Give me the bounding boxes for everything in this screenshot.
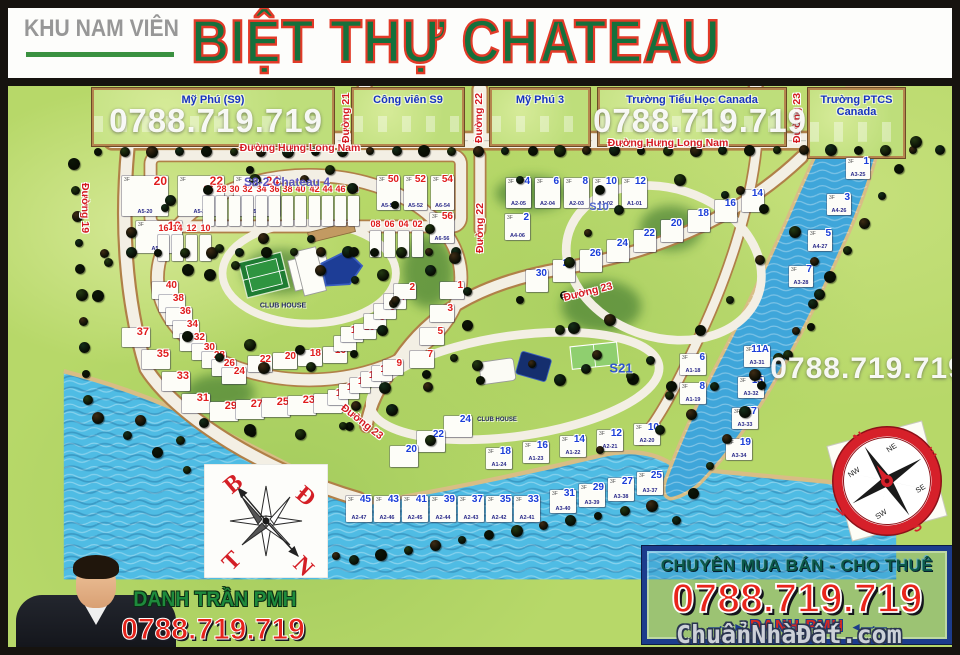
tree-icon (425, 248, 433, 256)
tree-icon (154, 249, 162, 257)
lot-block: 13FA3-25 (846, 158, 870, 179)
agent-hair (73, 555, 119, 579)
lot-block: 183FA1-24 (486, 448, 512, 469)
lot-block: 1 (440, 282, 464, 299)
tree-icon (792, 327, 800, 335)
lot-floor-label: 3F (124, 177, 130, 183)
tree-icon (473, 146, 484, 157)
lot-block: 83FA2-03 (564, 178, 589, 208)
tree-icon (83, 395, 93, 405)
tree-icon (554, 374, 566, 386)
tree-icon (463, 287, 472, 296)
lot-floor-label: 3F (406, 177, 412, 183)
agent-head (76, 560, 116, 608)
lot-block: 63FA2-04 (535, 178, 560, 208)
lot-floor-label: 3F (138, 222, 144, 228)
lot-block: 30 (526, 270, 548, 292)
lot-block: 143FA1-22 (560, 436, 586, 457)
lot-number: 19 (740, 438, 751, 448)
lot-number: 20 (671, 219, 682, 229)
lot-number: 35 (500, 495, 511, 505)
phone-overlay: 0788.719.719 (593, 102, 807, 140)
lot-floor-label: 3F (180, 177, 186, 183)
tree-icon (646, 500, 658, 512)
lot-number: 24 (460, 415, 471, 425)
lot-code: A6-54 (431, 203, 454, 209)
district-block: Công viên S9 (352, 88, 464, 146)
lot-block: 413FA2-45 (402, 496, 428, 522)
lot-code: A3-34 (726, 453, 752, 459)
lot-floor-label: 3F (348, 497, 354, 503)
tree-icon (810, 257, 819, 266)
tree-icon (246, 166, 254, 174)
lot-number: 2 (523, 213, 529, 223)
lot-floor-label: 3F (516, 497, 522, 503)
lot-block: 123FA1-01 (622, 178, 647, 208)
lot-floor-label: 3F (636, 425, 642, 431)
lot-number: 20 (285, 352, 296, 362)
lot-number: 50 (388, 175, 399, 185)
lot-block: 433FA2-46 (374, 496, 400, 522)
tree-icon (261, 247, 272, 258)
lot-block: 373FA2-43 (458, 496, 484, 522)
area-underline (26, 52, 174, 57)
lot-code: A1-24 (486, 462, 512, 468)
tree-icon (655, 425, 665, 435)
lot-code: A6-56 (430, 236, 454, 242)
lot-block: 36 (269, 196, 280, 226)
tree-icon (315, 265, 326, 276)
lot-code: A3-37 (637, 488, 663, 494)
lot-block: 29 (210, 402, 238, 421)
lot-number: 30 (536, 269, 547, 279)
tree-icon (152, 447, 163, 458)
lot-code: A2-41 (514, 515, 540, 521)
tree-icon (462, 320, 473, 331)
lot-block: 23 (288, 396, 316, 415)
lot-floor-label: 3F (404, 497, 410, 503)
lot-block: 3 (430, 305, 454, 322)
tree-icon (516, 176, 524, 184)
lot-number: 18 (310, 349, 321, 359)
tree-icon (430, 540, 441, 551)
lot-floor-label: 3F (433, 177, 439, 183)
tree-icon (807, 323, 815, 331)
lot-number: 16 (158, 224, 168, 233)
tree-icon (244, 424, 256, 436)
district-label: Trường PTCS Canada (810, 94, 903, 118)
lot-number: 02 (412, 220, 422, 229)
lot-number: 8 (582, 177, 588, 187)
lot-code: A3-40 (550, 506, 576, 512)
lot-number: 31 (564, 489, 575, 499)
lot-block: 46 (335, 196, 346, 226)
lot-number: 22 (644, 229, 655, 239)
lot-number: 4 (524, 177, 530, 187)
agent-phone: 0788.719.719 (121, 613, 305, 647)
tree-icon (935, 145, 945, 155)
tree-icon (68, 158, 80, 170)
lot-code: A1-22 (560, 450, 586, 456)
lot-floor-label: 3F (507, 215, 513, 221)
promo-phone: 0788.719.719 (647, 577, 947, 620)
lot-number: 24 (234, 367, 245, 377)
lot-number: 18 (698, 209, 709, 219)
tree-icon (843, 246, 852, 255)
tree-icon (516, 296, 524, 304)
tree-icon (584, 229, 592, 237)
tree-icon (92, 412, 104, 424)
lot-block: 11A3FA3-31 (744, 346, 770, 367)
tree-icon (94, 148, 102, 156)
lot-code: A2-42 (486, 515, 512, 521)
watermark: ChuẩnNhàĐất.com (676, 620, 902, 647)
lot-code: A4-26 (827, 208, 851, 214)
tree-icon (76, 289, 88, 301)
lot-code: A1-19 (680, 397, 706, 403)
lot-floor-label: 3F (376, 497, 382, 503)
lot-code: A2-44 (430, 515, 456, 521)
lot-code: A3-32 (738, 391, 764, 397)
tree-icon (555, 325, 565, 335)
lot-block: 33 (162, 372, 190, 391)
lot-block: 33FA4-26 (827, 194, 851, 215)
lot-code: A3-33 (732, 422, 758, 428)
tree-icon (695, 325, 706, 336)
lot-number: 16 (537, 441, 548, 451)
lot-number: 7 (427, 350, 433, 360)
section-label: S8-2 Chateau 4 (244, 175, 330, 189)
agent-name: DANH TRẦN PMH (133, 588, 296, 612)
lot-number: 8 (699, 382, 705, 392)
lot-number: 38 (173, 294, 184, 304)
lot-floor-label: 3F (508, 179, 514, 185)
lot-block: 02 (412, 231, 423, 257)
lot-code: A2-05 (506, 201, 531, 207)
section-label: CLUB HOUSE (260, 303, 306, 310)
lot-number: 30 (229, 185, 239, 194)
lot-number: 25 (651, 471, 662, 481)
tree-icon (325, 165, 335, 175)
tree-icon (425, 265, 436, 276)
street-label: Đường 21 (340, 93, 352, 143)
lot-block: 34 (256, 196, 267, 226)
lot-block: 31 (182, 394, 210, 413)
lot-floor-label: 3F (488, 449, 494, 455)
tree-icon (370, 248, 379, 257)
header: KHU NAM VIÊN BIỆT THỰ CHATEAU (8, 8, 952, 86)
street-label: Đường 19 (79, 183, 91, 233)
lot-code: A3-31 (744, 360, 770, 366)
lot-number: 35 (157, 349, 169, 360)
tree-icon (450, 354, 458, 362)
lot-floor-label: 3F (810, 231, 816, 237)
lot-number: 33 (528, 495, 539, 505)
tree-icon (854, 146, 863, 155)
poster-title: BIỆT THỰ CHATEAU (191, 7, 720, 76)
tree-icon (646, 356, 655, 365)
site-map: Mỹ Phú (S9)Công viên S9Mỹ Phú 3Trường Ti… (0, 86, 960, 647)
lot-block: 35 (142, 350, 170, 369)
tree-icon (568, 322, 580, 334)
lot-code: A4-27 (808, 244, 832, 250)
street-label: Đường 22 (474, 203, 486, 253)
lot-number: 14 (574, 435, 585, 445)
lot-number: 14 (172, 224, 182, 233)
tree-icon (203, 185, 213, 195)
tree-icon (350, 350, 358, 358)
section-label: S21 (609, 361, 632, 376)
tree-icon (349, 555, 359, 565)
lot-number: 41 (416, 495, 427, 505)
lot-block: 48 (348, 196, 359, 226)
tree-icon (726, 296, 734, 304)
tree-icon (347, 183, 358, 194)
tree-icon (425, 435, 436, 446)
tree-icon (75, 239, 83, 247)
lot-number: 54 (442, 175, 453, 185)
lot-floor-label: 3F (624, 179, 630, 185)
lot-block: 163FA1-23 (523, 442, 549, 463)
tree-icon (736, 186, 745, 195)
lot-number: 3 (447, 304, 453, 314)
lot-floor-label: 3F (566, 179, 572, 185)
tree-icon (594, 512, 602, 520)
lot-floor-label: 3F (740, 378, 746, 384)
tree-icon (258, 233, 269, 244)
tree-icon (564, 257, 575, 268)
lot-block: 16 (158, 235, 169, 261)
lot-number: 10 (200, 224, 210, 233)
lot-block: 293FA3-39 (579, 484, 605, 507)
lot-number: 45 (360, 495, 371, 505)
tree-icon (755, 255, 765, 265)
lot-block: 26 (580, 250, 602, 272)
district-label: Công viên S9 (373, 94, 443, 106)
lot-block: 20 (390, 446, 418, 467)
lot-number: 20 (154, 175, 167, 187)
lot-floor-label: 3F (236, 177, 242, 183)
lot-number: 10 (606, 177, 617, 187)
tree-icon (511, 525, 523, 537)
tree-icon (620, 506, 630, 516)
lot-floor-label: 3F (599, 431, 605, 437)
lot-code: A1-01 (622, 201, 647, 207)
lot-floor-label: 3F (639, 473, 645, 479)
lot-block: 333FA2-41 (514, 496, 540, 522)
tree-icon (258, 362, 270, 374)
lot-block: 9 (383, 360, 403, 375)
tree-icon (404, 546, 413, 555)
tree-icon (757, 381, 766, 390)
section-label: S10 (589, 201, 609, 213)
tree-icon (391, 296, 400, 305)
lot-block: 23FA4-06 (505, 214, 530, 240)
tree-icon (688, 488, 699, 499)
phone-overlay: 0788.719.719 (109, 102, 323, 140)
lot-block: 40 (295, 196, 306, 226)
lot-code: A4-06 (505, 233, 530, 239)
tree-icon (231, 261, 240, 270)
lot-number: 40 (166, 281, 177, 291)
lot-block: 273FA3-38 (608, 478, 634, 501)
tree-icon (126, 247, 137, 258)
section-label: CLUB HOUSE (477, 417, 517, 423)
district-block: Mỹ Phú 3 (490, 88, 590, 146)
tree-icon (230, 148, 238, 156)
lot-block: 353FA2-42 (486, 496, 512, 522)
tree-icon (614, 205, 624, 215)
lot-floor-label: 3F (682, 355, 688, 361)
project-area-label: KHU NAM VIÊN (24, 15, 179, 43)
lot-block: 63FA1-18 (680, 354, 706, 375)
tree-icon (244, 339, 256, 351)
lot-code: A2-43 (458, 515, 484, 521)
lot-code: A2-03 (564, 201, 589, 207)
tree-icon (665, 391, 674, 400)
tree-icon (92, 290, 104, 302)
tree-icon (183, 466, 191, 474)
lot-number: 56 (442, 212, 453, 222)
tree-icon (447, 147, 456, 156)
lot-floor-label: 3F (488, 497, 494, 503)
lot-number: 18 (500, 447, 511, 457)
lot-floor-label: 3F (829, 195, 835, 201)
lot-number: 16 (725, 199, 736, 209)
tree-icon (859, 218, 870, 229)
lot-number: 31 (197, 393, 209, 404)
lot-number: 08 (370, 220, 380, 229)
tree-icon (596, 446, 604, 454)
lot-number: 37 (472, 495, 483, 505)
tree-icon (316, 247, 326, 257)
tree-icon (100, 249, 109, 258)
lot-number: 1 (863, 157, 869, 167)
lot-block: 44 (322, 196, 333, 226)
lot-code: A2-20 (634, 438, 660, 444)
tree-icon (182, 264, 194, 276)
lot-number: 34 (187, 320, 198, 330)
lot-block: 16 (715, 200, 737, 222)
tree-icon (672, 516, 681, 525)
lot-number: 12 (611, 429, 622, 439)
street-label: Đường Hưng Long Nam (240, 142, 361, 154)
lot-number: 04 (398, 220, 408, 229)
tree-icon (182, 331, 193, 342)
lot-code: A2-45 (402, 515, 428, 521)
lot-number: 06 (384, 220, 394, 229)
tree-icon (123, 431, 132, 440)
lot-block: 313FA3-40 (550, 490, 576, 513)
tree-icon (215, 353, 224, 362)
tree-icon (476, 376, 485, 385)
lot-floor-label: 3F (581, 485, 587, 491)
lot-block: 18 (688, 210, 710, 232)
lot-code: A3-25 (846, 172, 870, 178)
tree-icon (422, 370, 431, 379)
street-label: Đường 22 (473, 93, 485, 143)
lot-number: 5 (437, 327, 443, 337)
compass-rose: N S E W NE SE SW NW (822, 416, 952, 551)
lot-number: 52 (415, 175, 426, 185)
tree-icon (878, 192, 886, 200)
lot-number: 26 (590, 249, 601, 259)
lot-floor-label: 3F (562, 437, 568, 443)
lot-code: A2-04 (535, 201, 560, 207)
lot-number: 28 (216, 185, 226, 194)
lot-block: 22 (634, 230, 656, 252)
lot-number: 46 (335, 185, 345, 194)
lot-block: 28 (216, 196, 227, 226)
lot-block: 83FA1-19 (680, 383, 706, 404)
lot-floor-label: 3F (525, 443, 531, 449)
lot-block: 253FA3-37 (637, 472, 663, 495)
lot-block: 24 (222, 368, 246, 384)
lot-block: 24 (444, 416, 472, 437)
lot-number: 14 (752, 189, 763, 199)
district-label: Mỹ Phú 3 (516, 94, 564, 106)
lot-block: 26 (203, 196, 214, 226)
tree-icon (666, 381, 677, 392)
lot-code: A1-23 (523, 456, 549, 462)
lot-block: 453FA2-47 (346, 496, 372, 522)
lot-number: 33 (177, 371, 189, 382)
tree-icon (674, 174, 686, 186)
lot-block: 06 (384, 231, 395, 257)
compass-sketch: B Đ T N (204, 464, 328, 583)
phone-overlay: 0788.719.719 (770, 352, 960, 386)
lot-code: A2-47 (346, 515, 372, 521)
tree-icon (710, 382, 719, 391)
tree-icon (377, 269, 389, 281)
lot-number: 20 (406, 445, 417, 455)
tree-icon (332, 552, 340, 560)
lot-block: 25 (262, 398, 290, 417)
lot-number: 7 (806, 265, 812, 275)
lot-block: 7 (410, 351, 434, 368)
tree-icon (910, 136, 922, 148)
tree-icon (235, 248, 244, 257)
lot-floor-label: 3F (552, 491, 558, 497)
lot-floor-label: 3F (848, 159, 854, 165)
lot-floor-label: 3F (537, 179, 543, 185)
lot-floor-label: 3F (432, 214, 438, 220)
tree-icon (880, 145, 891, 156)
tree-icon (165, 195, 176, 206)
lot-code: A2-46 (374, 515, 400, 521)
lot-floor-label: 3F (682, 384, 688, 390)
tree-icon (595, 185, 605, 195)
tree-icon (396, 247, 407, 258)
lot-code: A1-18 (680, 368, 706, 374)
tree-icon (604, 314, 616, 326)
tree-icon (581, 364, 591, 374)
lot-floor-label: 3F (746, 347, 752, 353)
lot-floor-label: 3F (432, 497, 438, 503)
tree-icon (180, 248, 190, 258)
lot-floor-label: 3F (610, 479, 616, 485)
lot-block: 38 (282, 196, 293, 226)
lot-floor-label: 3F (379, 177, 385, 183)
lot-number: 6 (553, 177, 559, 187)
lot-number: 12 (635, 177, 646, 187)
lot-number: 12 (186, 224, 196, 233)
lot-number: 27 (622, 477, 633, 487)
tree-icon (204, 269, 216, 281)
lot-number: 43 (388, 495, 399, 505)
lot-number: 36 (180, 307, 191, 317)
lot-code: A5-52 (404, 203, 427, 209)
